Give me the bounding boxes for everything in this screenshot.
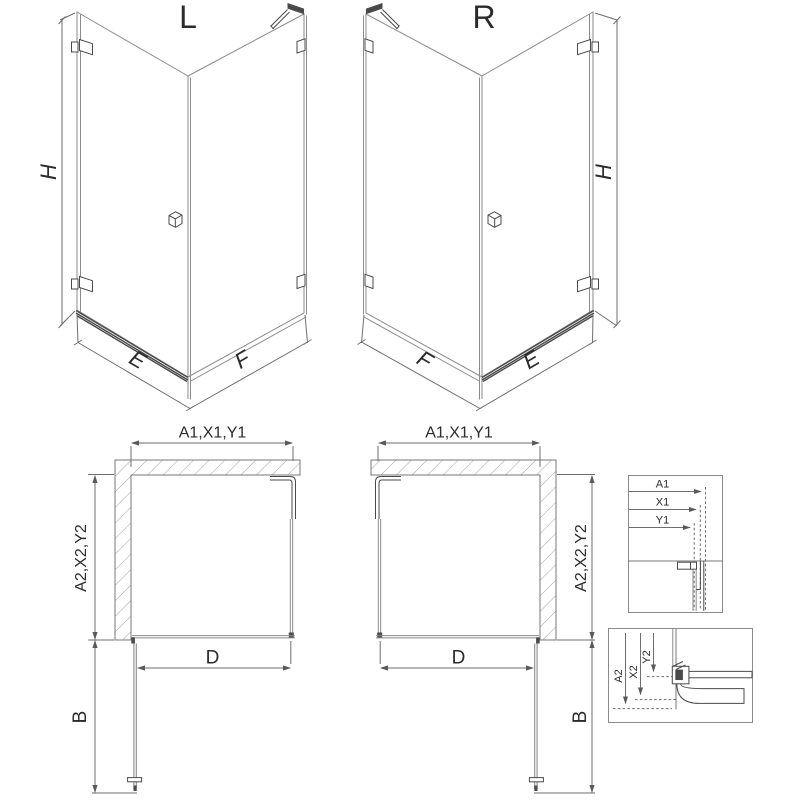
door-swing-label: B (570, 711, 591, 724)
door-glass-panel (482, 12, 593, 377)
y2-label: Y2 (641, 650, 653, 663)
dim-side-depth: A2,X2,Y2 (73, 475, 114, 641)
side-width-label: F (413, 345, 439, 374)
door-handle-plan (128, 778, 142, 782)
x1-label: X1 (656, 497, 669, 509)
dim-door-swing: B (534, 641, 595, 793)
fixed-panel-profile (376, 477, 402, 639)
door-width-label: D (452, 648, 466, 669)
fixed-panel-profile (270, 477, 296, 639)
wall-section (371, 460, 556, 640)
a2-label: A2 (613, 669, 625, 682)
threshold-line (376, 636, 539, 638)
wall-bracket-bottom (297, 274, 305, 288)
right-variant-title: R (472, 0, 495, 35)
height-label: H (36, 164, 61, 180)
wall-bracket-top (297, 39, 305, 53)
a1-label: A1 (656, 479, 669, 491)
door-handle (169, 212, 182, 228)
iso-view-left: L (36, 0, 312, 411)
front-width-label: E (125, 345, 151, 374)
plan-view-left: A1,X1,Y1 A2,X2,Y2 D (70, 425, 300, 794)
door-glass-panel (77, 12, 188, 377)
side-dim-label: A2,X2,Y2 (573, 524, 590, 592)
door-handle-plan (529, 778, 543, 782)
door-pivot (536, 637, 540, 643)
top-dim-label: A1,X1,Y1 (179, 425, 247, 442)
iso-view-right: R H (358, 0, 621, 411)
door-handle (488, 212, 501, 228)
detail-frame (629, 476, 723, 613)
x2-label: X2 (628, 665, 640, 678)
door-swing-label: B (70, 711, 91, 724)
side-dim-label: A2,X2,Y2 (73, 524, 90, 592)
front-width-label: E (519, 345, 545, 374)
shower-enclosure-technical-diagram: L (0, 0, 800, 800)
open-door (128, 637, 142, 791)
side-width-label: F (230, 345, 256, 374)
height-label: H (591, 164, 616, 180)
plan-view-right: A1,X1,Y1 A2,X2,Y2 D B (371, 425, 595, 794)
wall-bracket-top (365, 39, 373, 53)
y1-label: Y1 (656, 515, 669, 527)
door-pivot (131, 637, 135, 643)
open-door (529, 637, 543, 791)
detail-box-top: A1 X1 Y1 (629, 476, 723, 613)
side-glass-panel (366, 14, 482, 377)
wall-section (115, 460, 300, 640)
dim-door-swing: B (70, 641, 137, 793)
wall-bracket-bottom (365, 274, 373, 288)
top-dim-label: A1,X1,Y1 (425, 425, 493, 442)
left-variant-title: L (179, 0, 197, 35)
detail-box-bottom: A2 X2 Y2 (609, 629, 753, 723)
dim-side-depth: A2,X2,Y2 (557, 475, 595, 641)
dim-height-left: H (36, 13, 75, 328)
side-glass-panel (188, 14, 304, 377)
threshold-line (132, 636, 295, 638)
door-width-label: D (206, 648, 220, 669)
diagram-canvas: L (0, 0, 800, 800)
dim-door-width: D (138, 641, 291, 669)
dim-door-width: D (380, 641, 533, 669)
